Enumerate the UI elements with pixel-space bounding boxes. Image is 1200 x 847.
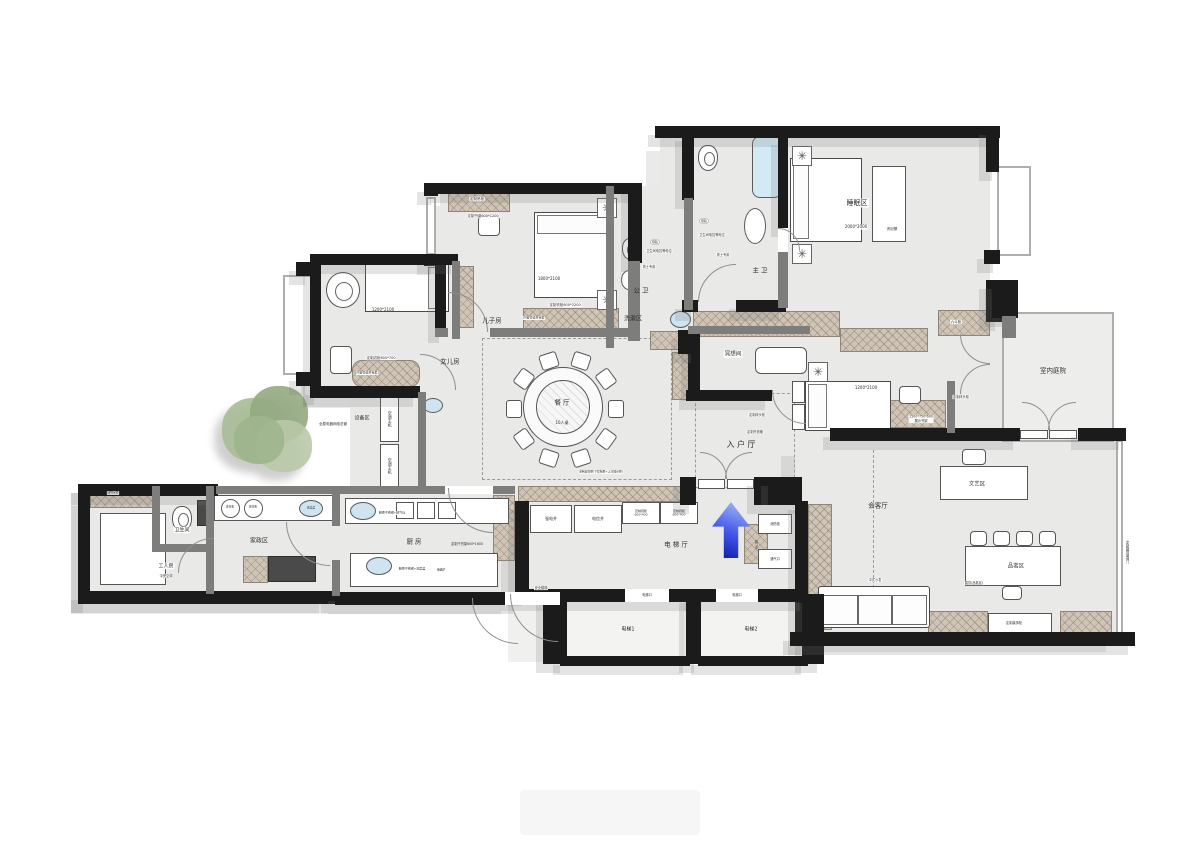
tea-chair-3 bbox=[1016, 531, 1033, 546]
shoe-cabinet-row bbox=[518, 486, 688, 502]
label: 卫生间 bbox=[174, 527, 191, 534]
label: 公 卫 bbox=[633, 287, 648, 295]
master-sink bbox=[744, 208, 766, 244]
label: 男士专用 bbox=[642, 265, 656, 269]
wall bbox=[768, 477, 802, 505]
hall-cabinet-east bbox=[840, 328, 928, 352]
label: 电信井 bbox=[592, 516, 604, 521]
master-toilet bbox=[698, 145, 718, 171]
window-bay-master bbox=[997, 166, 1031, 256]
label: 女儿房 bbox=[440, 358, 460, 366]
entry-door-panel-2 bbox=[727, 479, 754, 489]
daughter-chair bbox=[330, 346, 352, 374]
label: 主 卫 bbox=[752, 267, 767, 275]
living-sofa bbox=[818, 586, 930, 628]
equipment-basin bbox=[423, 398, 443, 413]
label: 会客厅 bbox=[868, 502, 888, 510]
wall bbox=[655, 126, 1000, 138]
window-living-east bbox=[1116, 440, 1123, 634]
wall bbox=[802, 594, 824, 664]
label: 橱柜不锈钢+燃气灶 bbox=[378, 511, 406, 515]
wall bbox=[152, 486, 160, 546]
son-bed bbox=[534, 212, 614, 298]
label: 安全楼梯 bbox=[534, 586, 548, 590]
wall bbox=[992, 280, 1018, 318]
label: 电梯2 bbox=[744, 626, 757, 633]
wall bbox=[686, 594, 701, 664]
label: 文艺区 bbox=[969, 480, 986, 487]
label: 儿子房 bbox=[482, 317, 502, 325]
label: 洗衣机 bbox=[226, 505, 234, 509]
label: 强电井 bbox=[545, 516, 557, 521]
label: 家政区 bbox=[250, 537, 268, 545]
label: 2000*2000 bbox=[844, 224, 868, 229]
label: 设备区 bbox=[355, 415, 370, 422]
wall bbox=[435, 254, 446, 334]
label: 煤气表 bbox=[754, 540, 757, 548]
stove-burner-2 bbox=[417, 502, 435, 519]
wall bbox=[216, 486, 334, 494]
label: 定制隐框玻璃门 bbox=[1125, 541, 1129, 563]
label: 定制鞋柜 600*400 bbox=[673, 509, 686, 517]
label: 男士专用 bbox=[716, 253, 730, 257]
label: 工人房 bbox=[158, 563, 175, 570]
label: 内置管道井包套 bbox=[356, 371, 378, 375]
label: 定制干货架600*1600 bbox=[451, 542, 483, 546]
label: 入 户 厅 bbox=[726, 440, 755, 450]
label: 定制书桌600*1200 bbox=[467, 214, 500, 219]
wall bbox=[310, 386, 420, 398]
label: 定制边柜600*700 bbox=[366, 356, 397, 361]
label: 导轨 bbox=[700, 219, 709, 224]
window-bay-west bbox=[283, 275, 313, 375]
courtyard-door-panel-2 bbox=[1049, 430, 1077, 439]
ceiling-symbol-5: ✳ bbox=[808, 362, 828, 382]
label: 电磁炉 bbox=[437, 568, 445, 572]
wall bbox=[1002, 316, 1016, 338]
label: 定制鞋柜 600*400 bbox=[635, 509, 648, 517]
label: 六斗柜 bbox=[950, 320, 962, 325]
tree bbox=[222, 386, 314, 476]
label: 消防栓 bbox=[770, 522, 780, 526]
label: 室内庭院 bbox=[1040, 367, 1066, 375]
wall bbox=[830, 428, 1020, 441]
wall bbox=[1078, 428, 1126, 441]
label: 定制开放格 bbox=[746, 430, 763, 434]
guest-desk-chair bbox=[899, 386, 921, 404]
master-dresser bbox=[938, 310, 990, 336]
label: 定制吊柜 bbox=[469, 197, 484, 202]
label: 卫生间电控等电位 bbox=[699, 233, 726, 237]
label: 1500*750*600 展示书架 bbox=[909, 415, 934, 423]
label: 定制床头柜 bbox=[952, 395, 969, 399]
watermark bbox=[520, 790, 700, 835]
meditation-couch bbox=[755, 347, 807, 374]
label: 洗漱区 bbox=[624, 315, 642, 323]
label: 通气口 bbox=[770, 557, 780, 561]
wall bbox=[418, 392, 426, 494]
wall bbox=[490, 328, 640, 337]
label: 内置管道井包套 bbox=[523, 316, 545, 320]
label: 储物吊柜 bbox=[107, 491, 119, 495]
label: 定制衣柜600*2200 bbox=[549, 303, 582, 308]
label: 1200*2100 bbox=[855, 385, 877, 390]
wall bbox=[778, 250, 788, 308]
kitchen-sink bbox=[350, 502, 376, 520]
label: 定制床头柜 bbox=[748, 413, 765, 417]
label: 电梯口 bbox=[642, 593, 653, 597]
island-sink bbox=[366, 557, 392, 575]
wall bbox=[424, 183, 438, 196]
label: 中式沙发 bbox=[868, 578, 882, 582]
wall bbox=[790, 632, 1135, 646]
wall bbox=[984, 250, 1000, 264]
wall bbox=[682, 132, 694, 200]
wall bbox=[754, 477, 768, 505]
wall bbox=[686, 390, 772, 401]
tea-chair-2 bbox=[993, 531, 1010, 546]
wall bbox=[78, 484, 218, 496]
label: 电梯1 bbox=[621, 626, 634, 633]
label: 中央空调 bbox=[159, 574, 173, 578]
wall bbox=[688, 326, 810, 334]
label: 导轨 bbox=[651, 240, 660, 245]
label: 洗衣机 bbox=[249, 505, 257, 509]
wall bbox=[986, 126, 999, 172]
tea-chair-4 bbox=[1039, 531, 1056, 546]
wall bbox=[606, 186, 614, 348]
label: 1200*2100 bbox=[372, 307, 394, 312]
label: 空调主机 bbox=[387, 458, 391, 474]
entry-door-panel-1 bbox=[698, 479, 725, 489]
guest-bed bbox=[805, 381, 891, 431]
living-axis-dashed bbox=[873, 450, 874, 588]
label: 定制装饰柜 bbox=[1006, 621, 1022, 625]
label: 洗菜盆 bbox=[307, 506, 315, 510]
label: 10人桌 bbox=[555, 420, 568, 425]
label: 餐 厅 bbox=[554, 399, 569, 407]
wall bbox=[78, 484, 90, 604]
daughter-egg-chair bbox=[326, 272, 360, 308]
wall bbox=[560, 656, 690, 666]
label: 橱柜不锈钢+洗菜盆 bbox=[398, 567, 426, 571]
wall bbox=[515, 501, 529, 597]
label: 全屋电器网络总管 bbox=[319, 422, 347, 427]
label: 电 梯 厅 bbox=[664, 541, 688, 549]
label: 直饮(品茗区) bbox=[964, 581, 984, 585]
son-desk-chair bbox=[478, 216, 500, 236]
wall bbox=[698, 656, 808, 666]
ceiling-symbol-1: ✳ bbox=[792, 146, 812, 166]
label: 冥想间 bbox=[724, 350, 743, 357]
floorplan-canvas: ✳✳✳✳✳睡眠区2000*2000贵妃榻主 卫公 卫洗漱区儿子房1800*210… bbox=[0, 0, 1200, 847]
wall bbox=[296, 262, 312, 276]
tea-chair-1 bbox=[970, 531, 987, 546]
art-zone-chair bbox=[962, 449, 986, 465]
label: 贵妃榻 bbox=[886, 227, 898, 232]
housekeeping-hatch-box bbox=[243, 556, 268, 583]
label: 定制装饰柜(下层鞋柜+上方展示柜) bbox=[579, 470, 624, 474]
label: 品茗区 bbox=[1008, 562, 1025, 569]
label: 厨 房 bbox=[406, 538, 421, 546]
wall bbox=[684, 198, 693, 310]
courtyard-door-panel-1 bbox=[1020, 430, 1048, 439]
wall bbox=[310, 254, 458, 265]
wall bbox=[947, 381, 955, 433]
label: 1800*2100 bbox=[538, 276, 560, 281]
wall bbox=[296, 372, 312, 386]
tea-host-chair bbox=[1002, 586, 1022, 600]
label: 电梯口 bbox=[732, 593, 743, 597]
label: 空调主机 bbox=[387, 411, 391, 427]
wall bbox=[778, 136, 788, 228]
son-desk-cabinet bbox=[448, 192, 510, 212]
wall bbox=[332, 560, 340, 596]
window-bay-son bbox=[426, 197, 436, 255]
label: 卫生间电控等电位 bbox=[646, 249, 673, 253]
wall bbox=[680, 477, 696, 505]
wall bbox=[435, 328, 448, 337]
label: 睡眠区 bbox=[845, 198, 869, 207]
wall bbox=[628, 183, 642, 263]
